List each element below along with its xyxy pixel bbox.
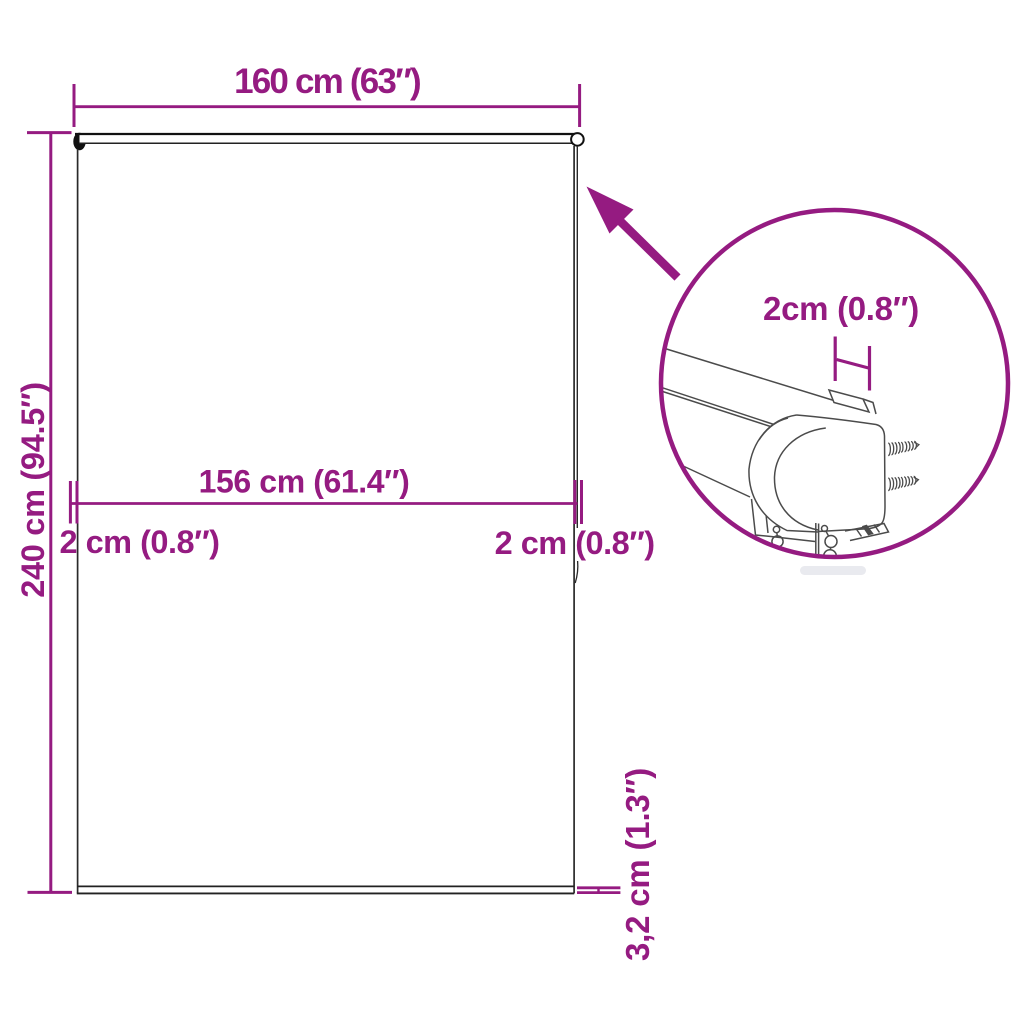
svg-text:2cm (0.8″): 2cm (0.8″) — [763, 290, 919, 327]
svg-text:2 cm (0.8″): 2 cm (0.8″) — [495, 525, 655, 561]
svg-text:3,2 cm (1.3″): 3,2 cm (1.3″) — [619, 768, 656, 961]
svg-text:2 cm (0.8″): 2 cm (0.8″) — [60, 524, 220, 560]
svg-text:160 cm (63″): 160 cm (63″) — [234, 62, 420, 101]
svg-text:156 cm (61.4″): 156 cm (61.4″) — [199, 464, 410, 500]
svg-text:240 cm (94.5″): 240 cm (94.5″) — [15, 382, 51, 598]
